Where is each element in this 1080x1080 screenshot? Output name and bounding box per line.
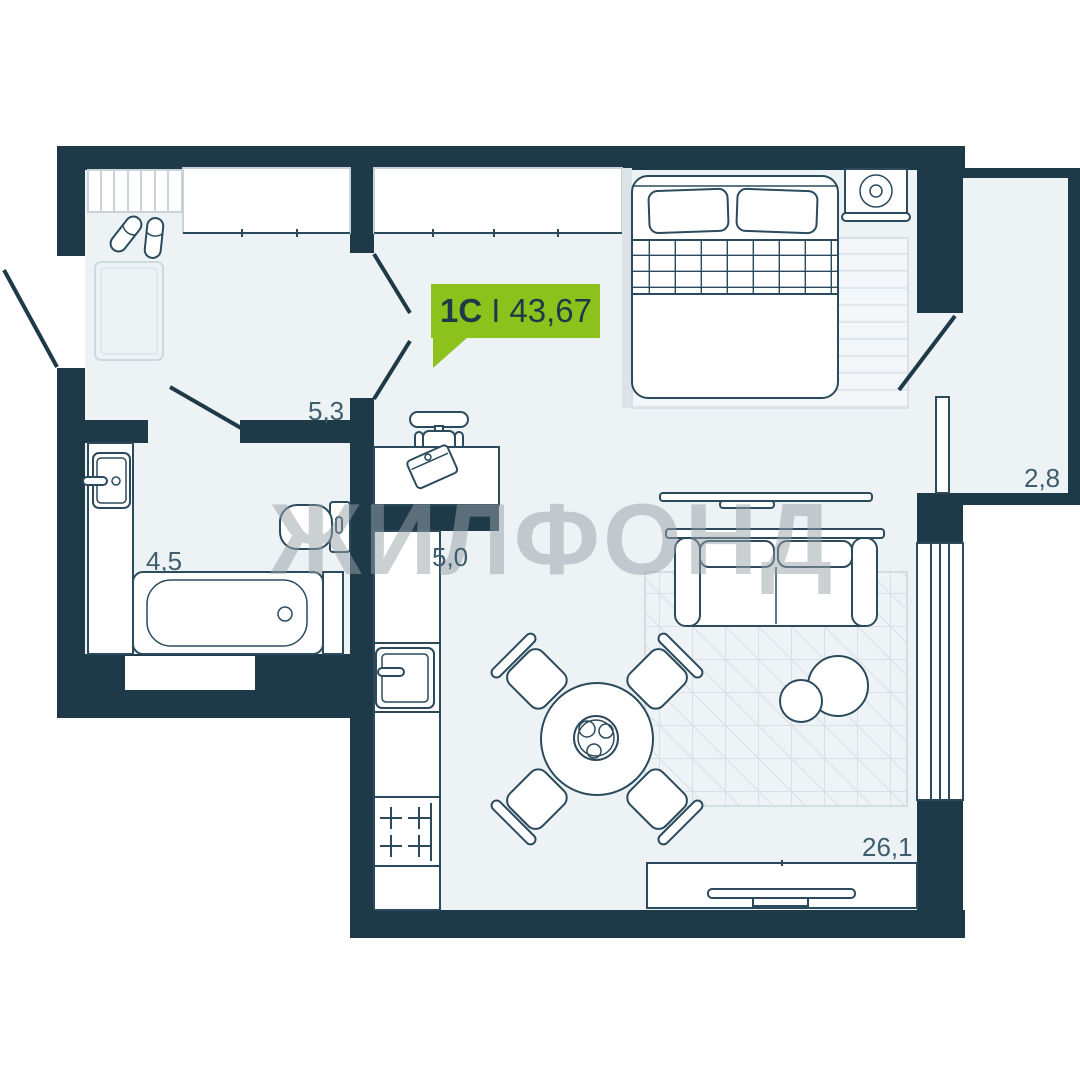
- hallway-door-gap-floor: [350, 253, 374, 398]
- double-bed: [632, 176, 838, 398]
- nightstand-lamp: [842, 169, 910, 221]
- wall-balcony-pier: [917, 170, 963, 313]
- blanket-checkered: [632, 240, 838, 294]
- badge-type: 1С: [440, 292, 482, 329]
- hallway-area-label: 5,3: [308, 396, 344, 426]
- badge-divider: I: [491, 292, 500, 329]
- tv-base: [753, 898, 808, 906]
- wall-hall-divider-upper: [350, 167, 374, 253]
- floor-plan-drawing: ЖИЛФОНД 5,3 4,5 5,0 2,8 26,1 1СI43,67: [0, 0, 1080, 1080]
- wall-balcony-right: [1068, 168, 1080, 505]
- tv-console: [647, 860, 917, 908]
- wall-left-lower: [57, 368, 85, 654]
- pouf-small: [780, 680, 822, 722]
- wall-hall-divider-lower: [350, 398, 374, 938]
- floor-plan-page: ЖИЛФОНД 5,3 4,5 5,0 2,8 26,1 1СI43,67: [0, 0, 1080, 1080]
- entrance-door-swing: [4, 270, 57, 367]
- wall-right-mid: [917, 505, 963, 543]
- wall-balcony-top: [963, 168, 1080, 178]
- badge-label: 1СI43,67: [440, 292, 592, 329]
- wall-left-upper: [57, 146, 85, 256]
- fruit-bowl: [574, 716, 618, 760]
- badge-area: 43,67: [509, 292, 592, 329]
- pillow: [648, 189, 728, 234]
- living-room-window: [917, 543, 963, 800]
- balcony-floor: [963, 178, 1068, 493]
- wall-right-lower: [917, 800, 963, 912]
- balcony-window-strip: [936, 397, 949, 493]
- balcony-area-label: 2,8: [1024, 463, 1060, 493]
- wall-balcony-bottom: [917, 493, 1080, 505]
- bathroom-area-label: 4,5: [146, 546, 182, 576]
- wall-bath-top-left: [57, 420, 148, 443]
- wardrobe-rail: [88, 170, 182, 212]
- living-area-label: 26,1: [862, 832, 913, 862]
- pillow: [736, 189, 817, 234]
- tv-screen: [708, 889, 855, 898]
- wall-niche: [125, 656, 255, 690]
- hall-closet: [183, 168, 350, 237]
- wall-top: [57, 146, 965, 170]
- kitchen-area-label: 5,0: [432, 542, 468, 572]
- bathroom-door-gap-floor: [148, 420, 240, 443]
- bedroom-closet: [374, 168, 622, 237]
- fridge: [376, 648, 434, 708]
- watermark: ЖИЛФОНД: [269, 484, 835, 596]
- wall-bottom: [374, 910, 965, 938]
- closet-side-panel: [622, 168, 632, 408]
